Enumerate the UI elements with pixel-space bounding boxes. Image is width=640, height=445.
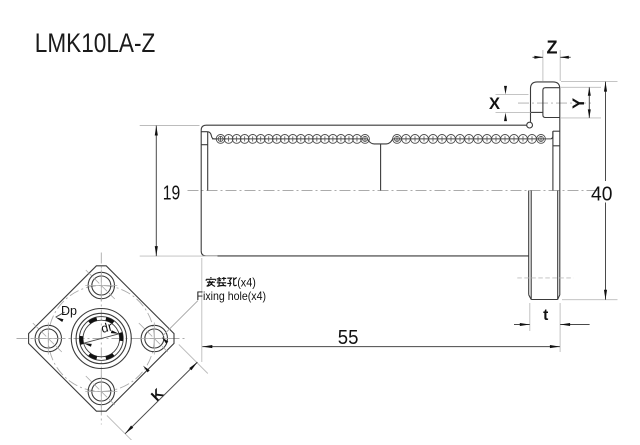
svg-text:Y: Y	[570, 98, 588, 109]
svg-text:55: 55	[338, 326, 359, 349]
svg-text:(x4): (x4)	[237, 278, 256, 290]
svg-text:t: t	[543, 307, 548, 324]
svg-text:Fixing hole(x4): Fixing hole(x4)	[197, 289, 267, 303]
svg-text:LMK10LA-Z: LMK10LA-Z	[35, 28, 156, 58]
svg-text:Z: Z	[547, 38, 558, 58]
svg-text:Dp: Dp	[61, 304, 77, 318]
svg-text:40: 40	[591, 182, 612, 205]
svg-text:X: X	[489, 95, 500, 113]
svg-text:19: 19	[163, 181, 180, 204]
